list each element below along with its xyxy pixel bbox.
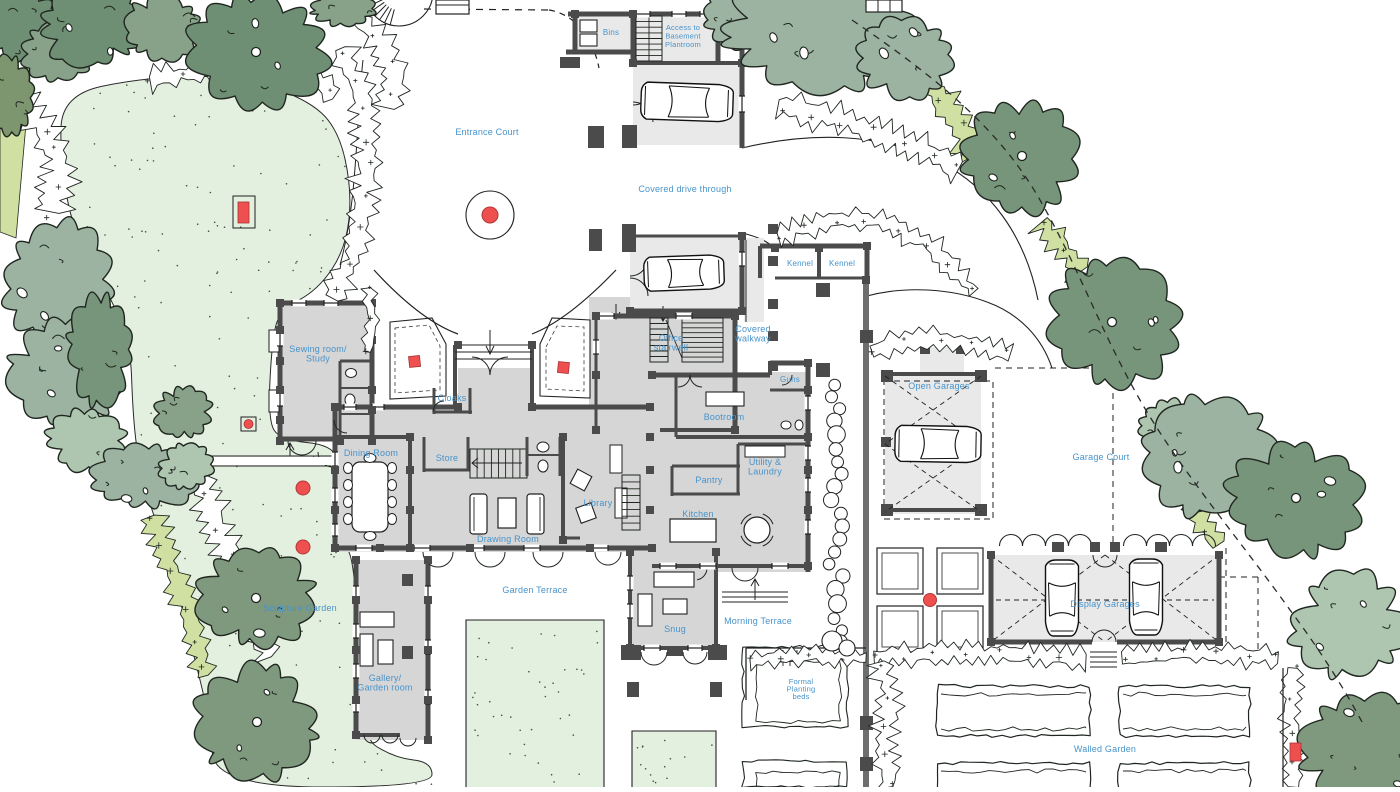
svg-text:Covered drive through: Covered drive through bbox=[638, 184, 731, 194]
svg-text:Sewing room/: Sewing room/ bbox=[289, 344, 347, 354]
svg-text:Garden room: Garden room bbox=[357, 683, 412, 693]
svg-text:Cloaks: Cloaks bbox=[438, 393, 467, 403]
svg-text:Dining Room: Dining Room bbox=[344, 448, 398, 458]
svg-text:beds: beds bbox=[792, 692, 809, 701]
svg-text:Office: Office bbox=[659, 333, 684, 343]
svg-text:Kitchen: Kitchen bbox=[682, 509, 713, 519]
svg-text:Bootroom: Bootroom bbox=[704, 412, 745, 422]
svg-text:Library: Library bbox=[584, 498, 613, 508]
svg-text:Pantry: Pantry bbox=[695, 475, 723, 485]
svg-text:Garage Court: Garage Court bbox=[1073, 452, 1130, 462]
svg-text:Plantroom: Plantroom bbox=[665, 40, 701, 49]
svg-text:walkway: walkway bbox=[734, 334, 771, 344]
svg-text:Morning Terrace: Morning Terrace bbox=[724, 616, 792, 626]
svg-text:Garden Terrace: Garden Terrace bbox=[502, 585, 567, 595]
svg-text:Walled Garden: Walled Garden bbox=[1074, 744, 1136, 754]
svg-text:Covered: Covered bbox=[735, 324, 770, 334]
svg-text:Open Garages: Open Garages bbox=[908, 381, 970, 391]
svg-text:Drawing Room: Drawing Room bbox=[477, 534, 539, 544]
svg-text:Kennel: Kennel bbox=[829, 259, 855, 268]
svg-text:stairwell: stairwell bbox=[654, 343, 688, 353]
svg-text:Laundry: Laundry bbox=[748, 467, 782, 477]
svg-text:Kennel: Kennel bbox=[787, 259, 813, 268]
svg-text:Guns: Guns bbox=[780, 375, 800, 384]
svg-text:Display Garages: Display Garages bbox=[1070, 599, 1140, 609]
svg-text:Store: Store bbox=[436, 453, 459, 463]
svg-text:Sculpture Garden: Sculpture Garden bbox=[263, 603, 337, 613]
svg-text:Utility &: Utility & bbox=[749, 457, 781, 467]
svg-text:Gallery/: Gallery/ bbox=[369, 673, 402, 683]
svg-text:Snug: Snug bbox=[664, 624, 686, 634]
svg-text:Entrance Court: Entrance Court bbox=[455, 127, 519, 137]
svg-text:Study: Study bbox=[306, 354, 330, 364]
svg-text:Bins: Bins bbox=[603, 28, 619, 37]
